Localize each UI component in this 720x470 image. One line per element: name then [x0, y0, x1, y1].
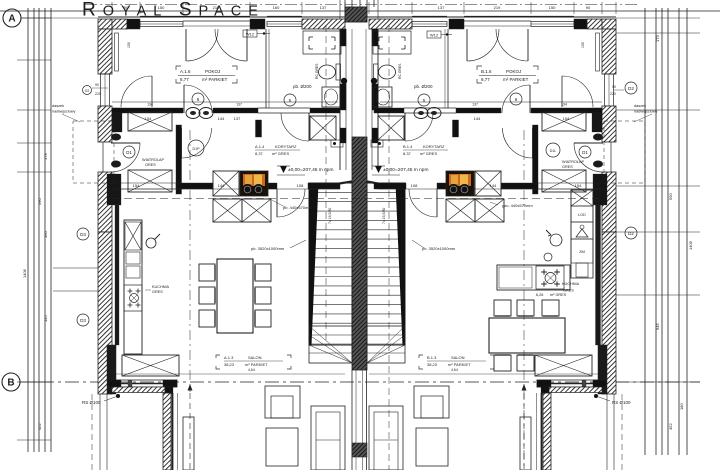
svg-text:D1: D1 [126, 150, 132, 155]
svg-text:m² GRES: m² GRES [420, 151, 437, 156]
svg-text:137: 137 [472, 103, 478, 107]
svg-text:WIATROLAP: WIATROLAP [562, 160, 585, 164]
svg-text:137: 137 [236, 103, 242, 107]
svg-text:90: 90 [612, 85, 616, 89]
svg-text:W12: W12 [246, 32, 255, 37]
svg-text:daszek: daszek [634, 104, 646, 108]
svg-text:pb. Ø200: pb. Ø200 [293, 84, 312, 89]
svg-text:6,26: 6,26 [536, 293, 543, 297]
svg-text:452: 452 [37, 423, 42, 430]
svg-text:219: 219 [213, 5, 220, 10]
svg-text:137: 137 [320, 5, 327, 10]
svg-text:D1: D1 [582, 150, 588, 155]
svg-text:m² PARKIET: m² PARKIET [448, 362, 471, 367]
svg-text:gzo. 440x570mm: gzo. 440x570mm [502, 203, 533, 208]
svg-text:W12: W12 [430, 33, 439, 38]
svg-text:590: 590 [37, 198, 42, 205]
svg-text:144: 144 [218, 116, 225, 121]
svg-text:pb. 3520x1000mm: pb. 3520x1000mm [422, 246, 456, 251]
svg-text:219: 219 [494, 5, 501, 10]
svg-text:7x 16,5/30: 7x 16,5/30 [382, 208, 386, 224]
svg-text:A.1.6: A.1.6 [180, 69, 191, 74]
svg-text:RS Ø100: RS Ø100 [82, 400, 101, 405]
svg-text:4,64: 4,64 [451, 368, 458, 372]
svg-text:144: 144 [474, 116, 481, 121]
svg-text:134: 134 [147, 103, 153, 107]
svg-text:7x 16,5/30: 7x 16,5/30 [328, 208, 332, 224]
svg-text:1406: 1406 [22, 268, 27, 278]
svg-text:m² PARKIET: m² PARKIET [202, 77, 228, 82]
svg-text:SALON: SALON [451, 355, 465, 360]
svg-text:D1P: D1P [193, 147, 201, 151]
svg-text:4,64: 4,64 [248, 368, 255, 372]
svg-text:A: A [8, 14, 15, 25]
svg-text:D2: D2 [628, 231, 634, 236]
svg-text:A.1.3: A.1.3 [224, 355, 234, 360]
svg-text:GRES: GRES [562, 165, 573, 169]
svg-text:nadwejsciowy: nadwejsciowy [52, 110, 76, 114]
svg-text:8,77: 8,77 [180, 77, 189, 82]
svg-text:134: 134 [561, 103, 567, 107]
svg-text:108: 108 [297, 183, 304, 188]
svg-text:154: 154 [575, 183, 582, 188]
svg-text:m² PARKIET: m² PARKIET [245, 362, 268, 367]
svg-text:945: 945 [655, 323, 660, 330]
svg-text:m² GRES: m² GRES [272, 151, 289, 156]
svg-text:±0,00=207,45 m npm: ±0,00=207,45 m npm [288, 167, 333, 173]
svg-text:D3: D3 [80, 232, 86, 237]
svg-text:pb. Ø200: pb. Ø200 [414, 84, 433, 89]
svg-text:D1L: D1L [550, 149, 557, 153]
svg-text:KORYTARZ: KORYTARZ [423, 144, 445, 149]
svg-text:KORYTARZ: KORYTARZ [275, 144, 297, 149]
svg-text:160: 160 [43, 231, 48, 238]
svg-text:GRES: GRES [152, 290, 163, 294]
svg-text:180: 180 [679, 403, 684, 410]
svg-text:SALON: SALON [248, 355, 262, 360]
svg-text:LOD: LOD [578, 213, 586, 217]
svg-text:B.1.4: B.1.4 [403, 144, 413, 149]
svg-text:90: 90 [95, 83, 99, 87]
svg-text:m² GRES: m² GRES [550, 293, 567, 297]
svg-text:B.1.3: B.1.3 [427, 355, 437, 360]
svg-text:452: 452 [668, 423, 673, 430]
svg-text:O2: O2 [85, 89, 90, 93]
svg-text:POKOJ: POKOJ [205, 69, 220, 74]
svg-text:90: 90 [124, 5, 129, 10]
svg-text:108: 108 [411, 183, 418, 188]
svg-text:154: 154 [133, 183, 140, 188]
svg-text:8,77: 8,77 [481, 77, 490, 82]
svg-text:137: 137 [438, 5, 445, 10]
svg-text:590: 590 [668, 193, 673, 200]
svg-text:RS Ø100: RS Ø100 [612, 400, 631, 405]
svg-text:KUCHNIA: KUCHNIA [152, 285, 170, 289]
svg-text:KUCHNIA: KUCHNIA [562, 282, 580, 286]
svg-text:POKOJ: POKOJ [506, 69, 521, 74]
svg-text:150: 150 [549, 5, 556, 10]
svg-text:144: 144 [490, 183, 497, 188]
svg-text:137: 137 [234, 116, 241, 121]
svg-text:160: 160 [273, 5, 280, 10]
svg-text:WIATROLAP: WIATROLAP [142, 158, 165, 162]
svg-text:173: 173 [43, 153, 48, 160]
svg-text:38,23: 38,23 [224, 362, 235, 367]
svg-text:B: B [7, 378, 14, 389]
svg-text:A.1.4: A.1.4 [255, 144, 265, 149]
svg-text:1406: 1406 [688, 240, 693, 250]
svg-text:150: 150 [127, 42, 131, 48]
svg-text:220: 220 [610, 92, 616, 96]
svg-text:90: 90 [586, 5, 591, 10]
svg-text:GRES: GRES [145, 163, 156, 167]
svg-text:38,23: 38,23 [427, 362, 438, 367]
svg-text:ZM: ZM [579, 249, 585, 254]
svg-text:pb. 440x570mm: pb. 440x570mm [283, 205, 312, 210]
svg-text:B.1.6: B.1.6 [481, 69, 492, 74]
svg-text:pb. 3520x1000mm: pb. 3520x1000mm [251, 246, 285, 251]
svg-text:D2: D2 [628, 86, 634, 91]
svg-text:220: 220 [95, 92, 101, 96]
svg-text:daszek: daszek [52, 104, 64, 108]
svg-text:145: 145 [43, 315, 48, 322]
svg-text:8,37: 8,37 [403, 151, 412, 156]
svg-text:m² PARKIET: m² PARKIET [503, 77, 529, 82]
svg-text:150: 150 [158, 5, 165, 10]
svg-text:8,37: 8,37 [255, 151, 264, 156]
svg-text:RC GRES: RC GRES [398, 63, 402, 79]
svg-text:D3: D3 [80, 318, 86, 323]
svg-text:±0,00=207,45 m npm: ±0,00=207,45 m npm [383, 167, 428, 173]
svg-text:GRES: GRES [563, 289, 574, 293]
svg-text:154: 154 [145, 116, 152, 121]
svg-text:150: 150 [581, 42, 585, 48]
svg-text:173: 173 [655, 35, 660, 42]
svg-text:nadwejsciowy: nadwejsciowy [634, 110, 658, 114]
